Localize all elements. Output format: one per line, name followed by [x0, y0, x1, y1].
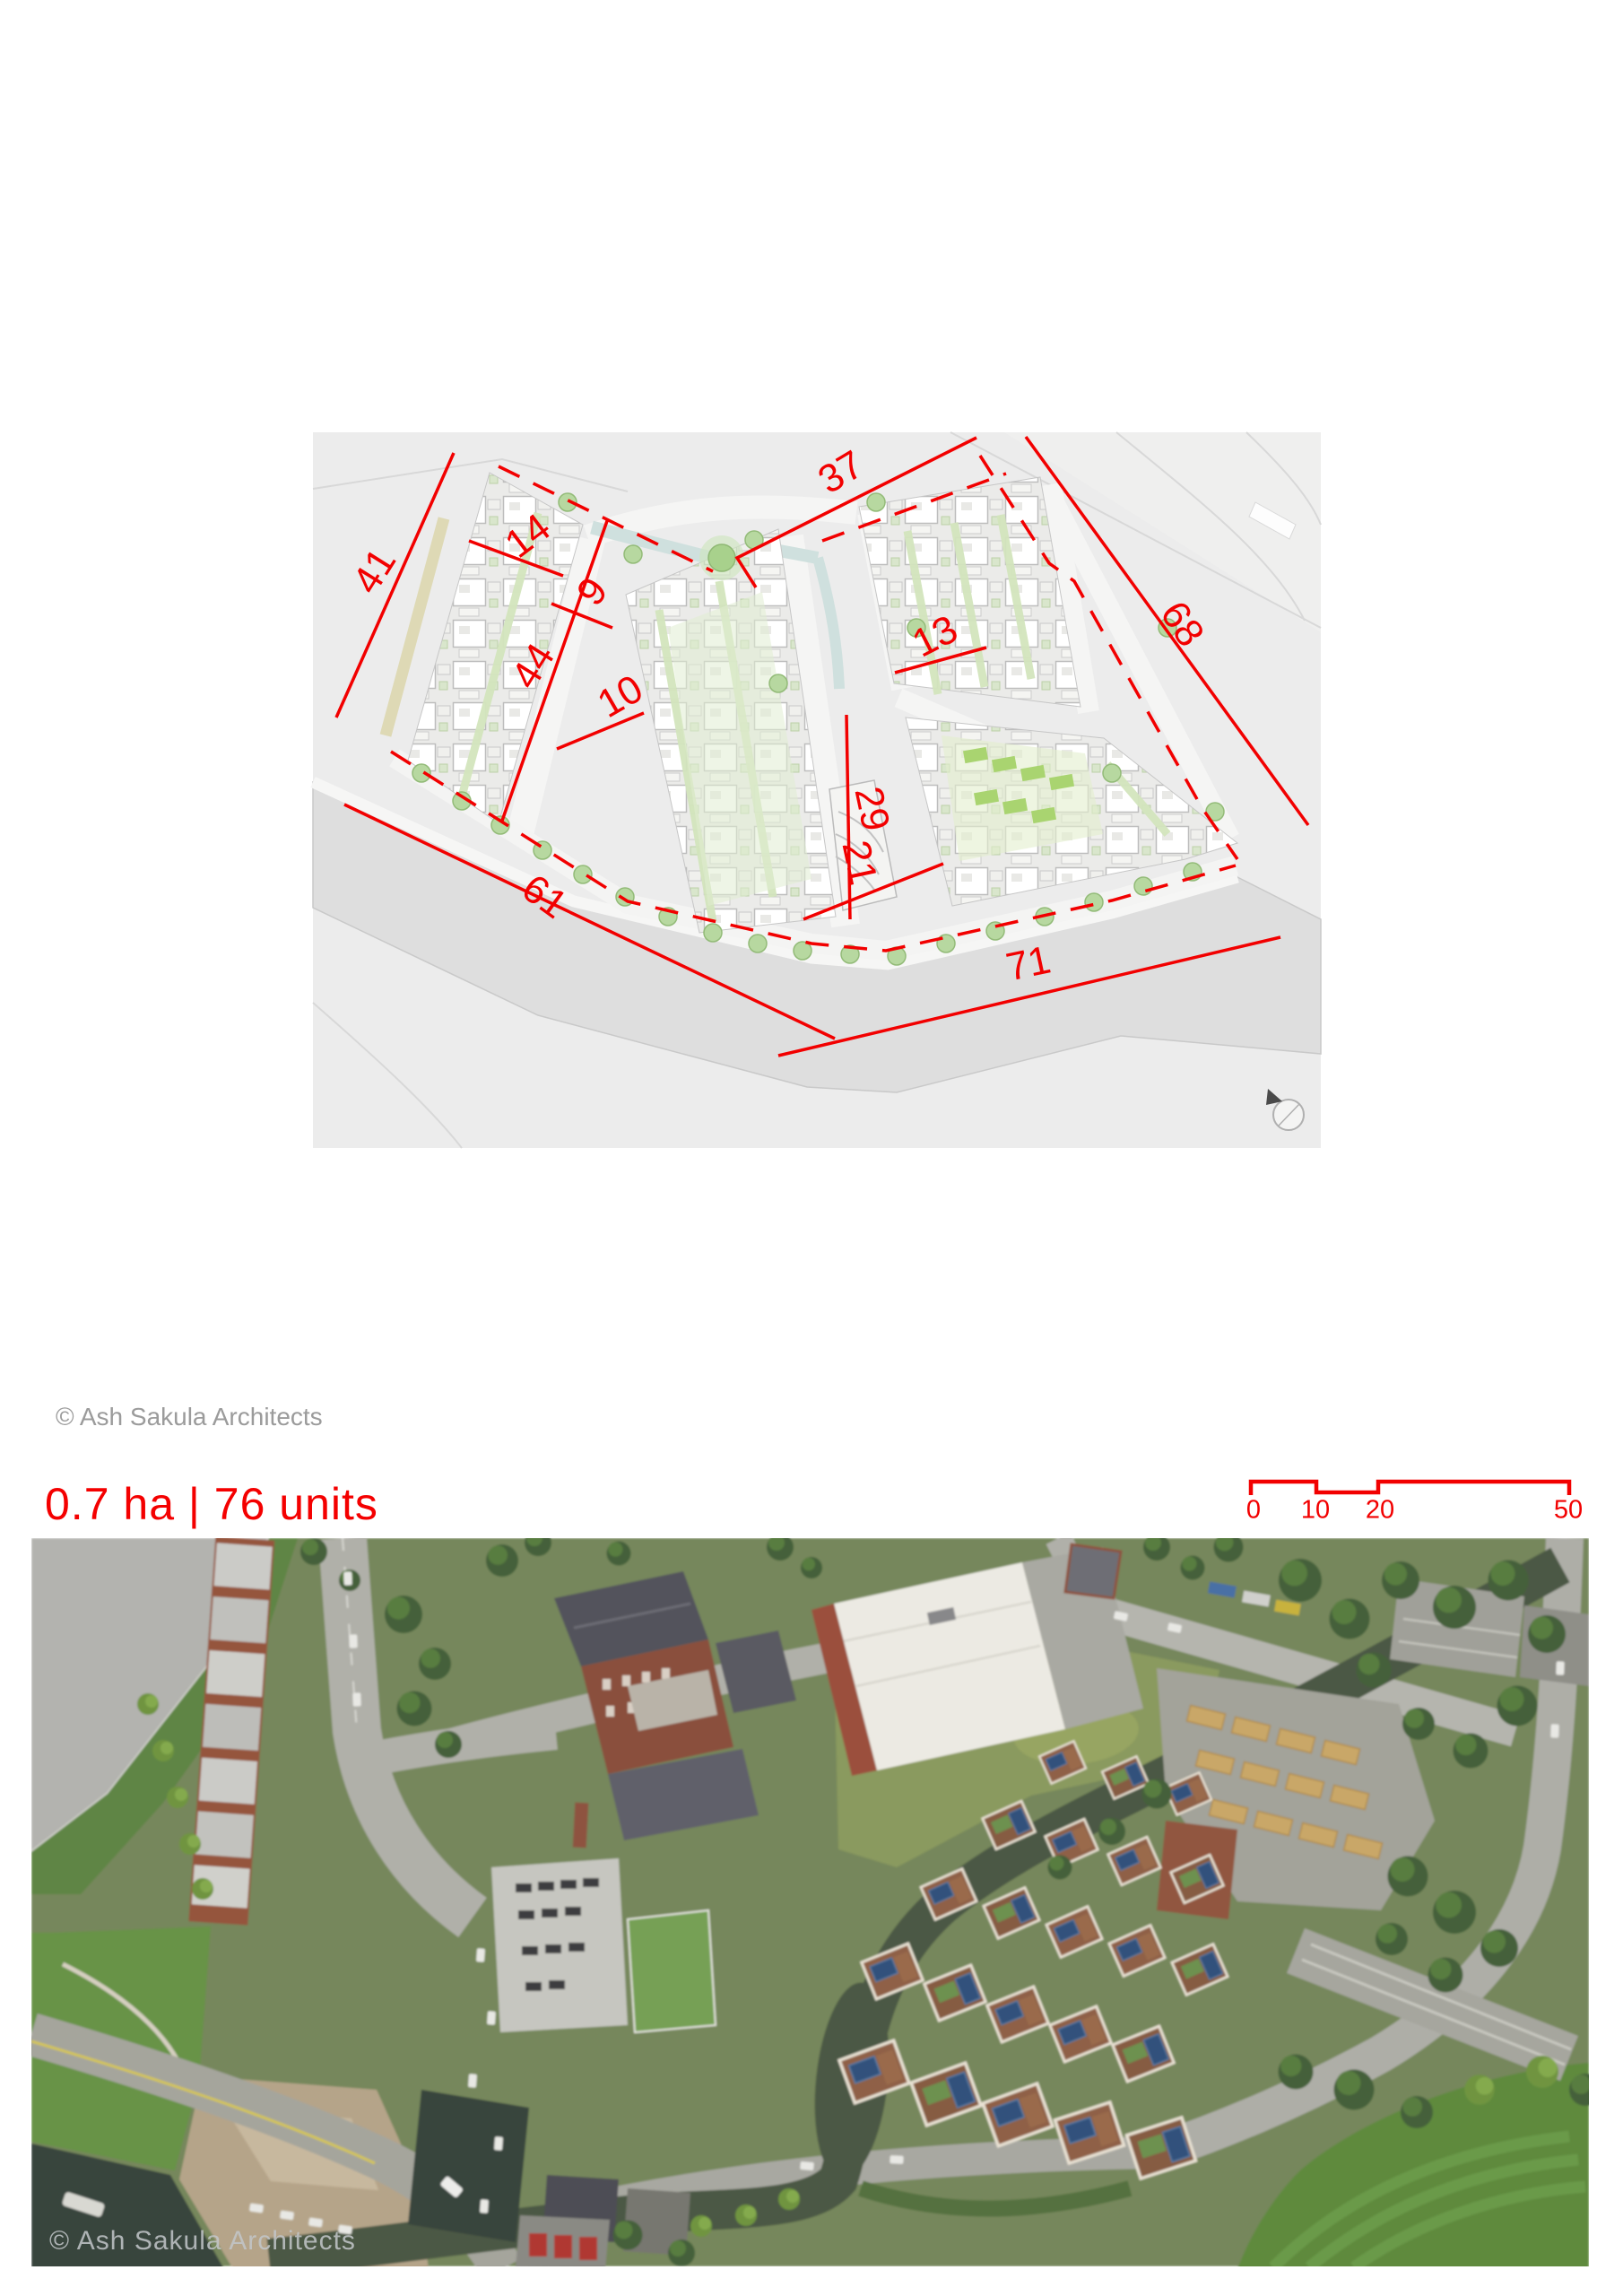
plan-credit: © Ash Sakula Architects	[56, 1405, 323, 1430]
photo-watermark: © Ash Sakula Architects	[49, 2228, 356, 2255]
scale-label-20: 20	[1366, 1498, 1394, 1524]
page: 41 14 9 44 10 37 13 68 29 21 61 71 © Ash…	[0, 0, 1623, 2296]
scale-bar-graphic	[1251, 1482, 1569, 1495]
site-plan-graphic	[313, 432, 1321, 1148]
stats-headline: 0.7 ha | 76 units	[45, 1482, 378, 1526]
scale-label-0: 0	[1246, 1498, 1261, 1524]
scale-label-10: 10	[1301, 1498, 1330, 1524]
aerial-photo-graphic	[31, 1529, 1601, 2269]
page-graphics	[0, 0, 1623, 2296]
dimension-label-29: 29	[847, 783, 895, 834]
scale-label-50: 50	[1554, 1498, 1583, 1524]
dimension-label-21: 21	[835, 837, 882, 888]
dimension-label-71: 71	[1002, 940, 1054, 987]
